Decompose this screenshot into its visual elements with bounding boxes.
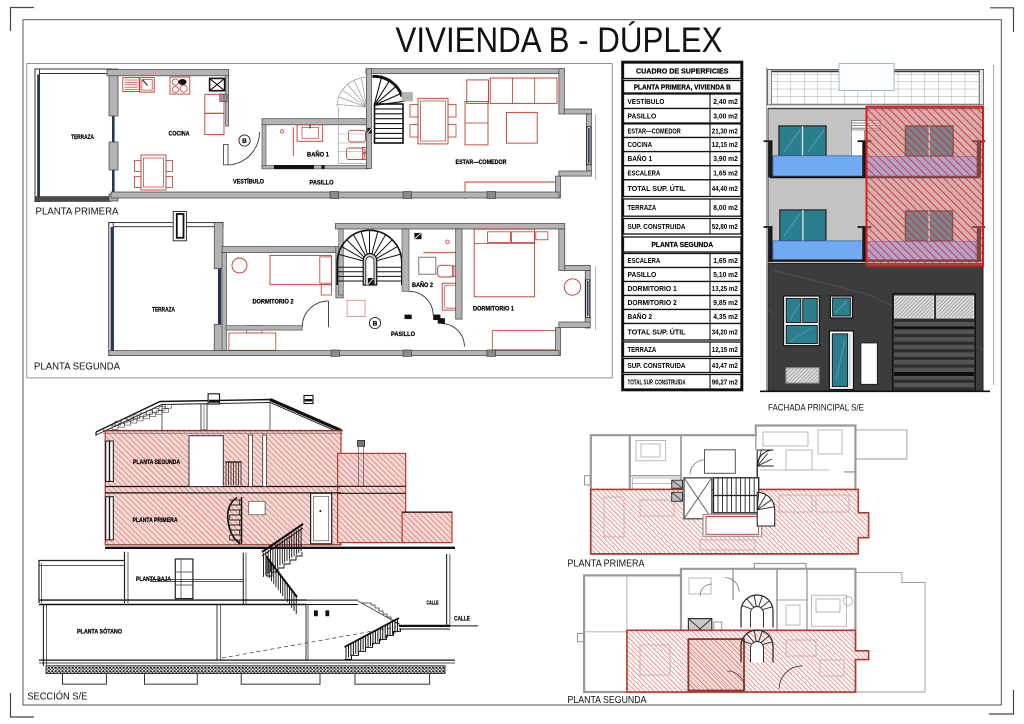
svg-text:PLANTA SEGUNDA: PLANTA SEGUNDA	[651, 242, 713, 249]
svg-text:1,65 m2: 1,65 m2	[713, 170, 738, 177]
svg-text:PLANTA SÓTANO: PLANTA SÓTANO	[77, 628, 122, 636]
svg-text:TOTAL SUP. ÚTIL: TOTAL SUP. ÚTIL	[628, 184, 687, 193]
svg-text:4,35 m2: 4,35 m2	[713, 314, 738, 321]
svg-text:PASILLO: PASILLO	[310, 180, 334, 187]
svg-text:PLANTA SEGUNDA: PLANTA SEGUNDA	[133, 459, 180, 466]
svg-text:TOTAL SUP. CONSTRUIDA: TOTAL SUP. CONSTRUIDA	[628, 379, 686, 386]
svg-text:BAÑO 1: BAÑO 1	[307, 150, 329, 159]
svg-text:8,00 m2: 8,00 m2	[713, 205, 738, 212]
svg-text:5,10 m2: 5,10 m2	[713, 272, 738, 279]
svg-text:COCINA: COCINA	[628, 142, 653, 149]
svg-text:9,85 m2: 9,85 m2	[713, 300, 738, 307]
svg-text:21,30 m2: 21,30 m2	[712, 128, 738, 135]
svg-text:VIVIENDA B - DÚPLEX: VIVIENDA B - DÚPLEX	[396, 21, 723, 60]
svg-text:ESCALERA: ESCALERA	[628, 258, 661, 265]
svg-text:3,00 m2: 3,00 m2	[713, 113, 738, 120]
svg-text:43,47 m2: 43,47 m2	[712, 363, 738, 370]
svg-text:ESTAR—COMEDOR: ESTAR—COMEDOR	[456, 159, 507, 166]
svg-text:34,20 m2: 34,20 m2	[712, 329, 738, 336]
svg-text:2,40 m2: 2,40 m2	[713, 99, 738, 106]
svg-text:BAÑO 1: BAÑO 1	[628, 154, 653, 163]
svg-text:44,40 m2: 44,40 m2	[712, 186, 738, 193]
svg-text:CALLE: CALLE	[454, 616, 470, 623]
svg-text:SUP. CONSTRUIDA: SUP. CONSTRUIDA	[628, 224, 686, 231]
svg-text:B: B	[242, 138, 247, 145]
svg-text:ESCALERA: ESCALERA	[628, 170, 661, 177]
svg-text:PLANTA PRIMERA: PLANTA PRIMERA	[568, 558, 645, 570]
svg-text:DORMITORIO 1: DORMITORIO 1	[628, 286, 677, 293]
svg-text:52,80 m2: 52,80 m2	[712, 224, 738, 231]
svg-text:96,27 m2: 96,27 m2	[712, 379, 738, 386]
svg-text:PLANTA SEGUNDA: PLANTA SEGUNDA	[568, 694, 647, 706]
svg-text:PASILLO: PASILLO	[391, 331, 415, 338]
svg-text:TOTAL SUP. ÚTIL: TOTAL SUP. ÚTIL	[628, 327, 687, 336]
svg-text:BAÑO 2: BAÑO 2	[628, 312, 653, 321]
svg-text:13,25 m2: 13,25 m2	[712, 286, 738, 293]
svg-text:PASILLO: PASILLO	[628, 272, 657, 279]
svg-text:12,15 m2: 12,15 m2	[712, 347, 738, 354]
svg-text:SECCIÓN S/E: SECCIÓN S/E	[27, 690, 87, 703]
svg-text:12,15 m2: 12,15 m2	[712, 142, 738, 149]
svg-text:DORMITORIO 2: DORMITORIO 2	[628, 300, 677, 307]
svg-text:SUP. CONSTRUIDA: SUP. CONSTRUIDA	[628, 363, 686, 370]
svg-text:TERRAZA: TERRAZA	[71, 134, 94, 141]
svg-text:TERRAZA: TERRAZA	[152, 307, 175, 314]
svg-text:COCINA: COCINA	[169, 131, 190, 138]
svg-text:VESTÍBULO: VESTÍBULO	[628, 97, 665, 106]
svg-text:PLANTA PRIMERA, VIVIENDA B: PLANTA PRIMERA, VIVIENDA B	[634, 84, 731, 91]
svg-text:3,90 m2: 3,90 m2	[713, 156, 738, 163]
svg-text:CUADRO DE SUPERFICIES: CUADRO DE SUPERFICIES	[636, 68, 729, 75]
svg-text:TERRAZA: TERRAZA	[628, 347, 657, 354]
svg-text:DORMITORIO 1: DORMITORIO 1	[473, 305, 514, 312]
svg-text:BAÑO 2: BAÑO 2	[412, 280, 433, 289]
svg-text:1,65 m2: 1,65 m2	[713, 258, 738, 265]
svg-text:PLANTA PRIMERA: PLANTA PRIMERA	[133, 517, 178, 524]
svg-text:B: B	[373, 321, 378, 328]
svg-text:CALLE: CALLE	[427, 601, 439, 607]
svg-text:PLANTA SEGUNDA: PLANTA SEGUNDA	[34, 362, 120, 373]
svg-text:PASILLO: PASILLO	[628, 113, 657, 120]
svg-text:TERRAZA: TERRAZA	[628, 205, 657, 212]
svg-text:ESTAR—COMEDOR: ESTAR—COMEDOR	[628, 128, 681, 135]
svg-text:PLANTA PRIMERA: PLANTA PRIMERA	[36, 207, 119, 218]
svg-text:VESTÍBULO: VESTÍBULO	[233, 177, 264, 186]
svg-text:FACHADA PRINCIPAL S/E: FACHADA PRINCIPAL S/E	[768, 403, 864, 414]
svg-text:DORMITORIO 2: DORMITORIO 2	[253, 299, 294, 306]
